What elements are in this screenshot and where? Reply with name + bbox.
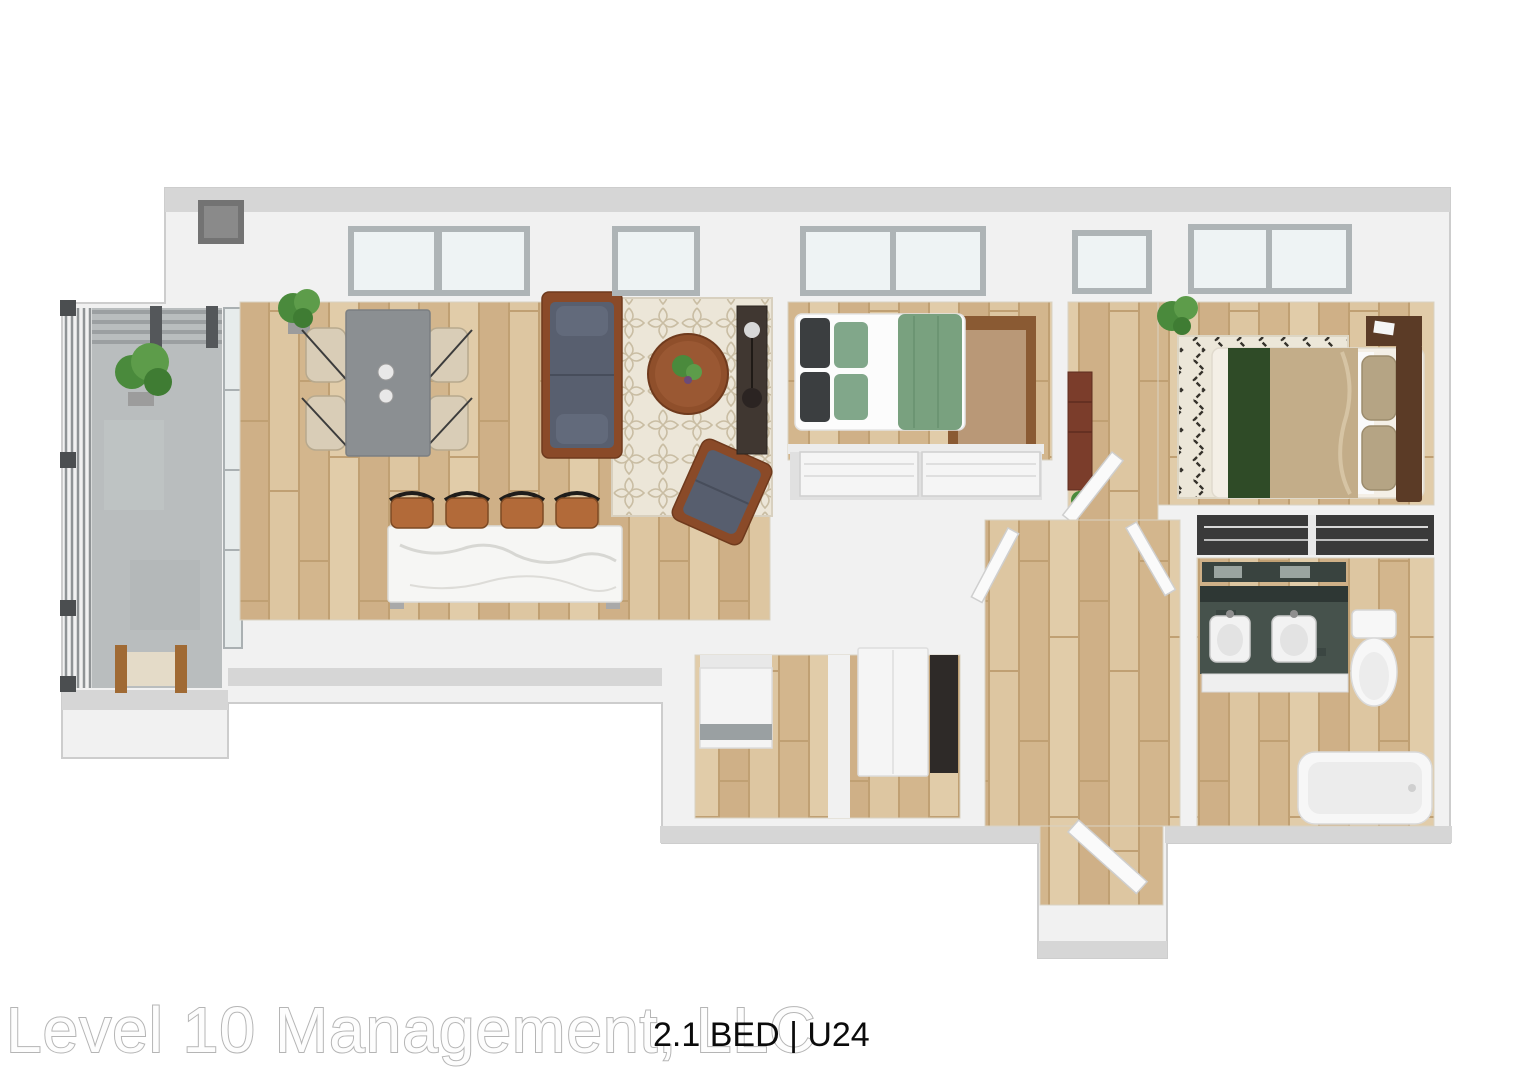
media-console	[737, 306, 767, 454]
hallway	[971, 520, 1180, 826]
bedroom2-bed	[1212, 344, 1424, 502]
roof-band	[165, 188, 1450, 212]
laundry	[695, 648, 960, 818]
chimney	[198, 200, 244, 244]
windows	[348, 224, 1352, 296]
bedroom1-closet	[788, 444, 1044, 500]
window	[1188, 224, 1352, 294]
window	[1072, 230, 1152, 294]
bathtub	[1298, 752, 1432, 824]
bedroom-2	[1157, 296, 1434, 505]
bedroom1-bed	[795, 314, 965, 430]
coffee-table	[648, 334, 728, 414]
toilet	[1351, 610, 1397, 706]
headboard	[1396, 344, 1422, 502]
vanity	[1200, 562, 1348, 692]
window	[800, 226, 986, 296]
bedroom-1	[788, 302, 1052, 500]
sink	[1272, 610, 1316, 662]
sofa	[542, 292, 622, 458]
washer-dryer	[700, 655, 772, 748]
nightstand	[1366, 316, 1422, 346]
entry	[1040, 820, 1163, 905]
linen-closet	[1197, 515, 1434, 555]
open-closet-gap	[930, 655, 958, 773]
vestibule	[1063, 302, 1158, 524]
dresser	[1068, 372, 1092, 490]
kitchen-island	[388, 493, 622, 609]
window	[612, 226, 700, 296]
living-dining-kitchen	[240, 289, 775, 620]
glass-wall	[224, 308, 242, 648]
floor-plan-rendering: Level 10 Management, LLC 2.1 BED | U24	[0, 0, 1527, 1080]
floor-plan-page: Level 10 Management, LLC 2.1 BED | U24	[0, 0, 1527, 1080]
window	[348, 226, 530, 296]
bathroom	[1197, 515, 1434, 826]
dining-table	[346, 310, 430, 456]
divider-wall	[828, 655, 850, 818]
unit-badge: 2.1 BED | U24	[653, 1016, 870, 1054]
balcony-chair	[115, 645, 187, 693]
sink	[1210, 610, 1250, 662]
